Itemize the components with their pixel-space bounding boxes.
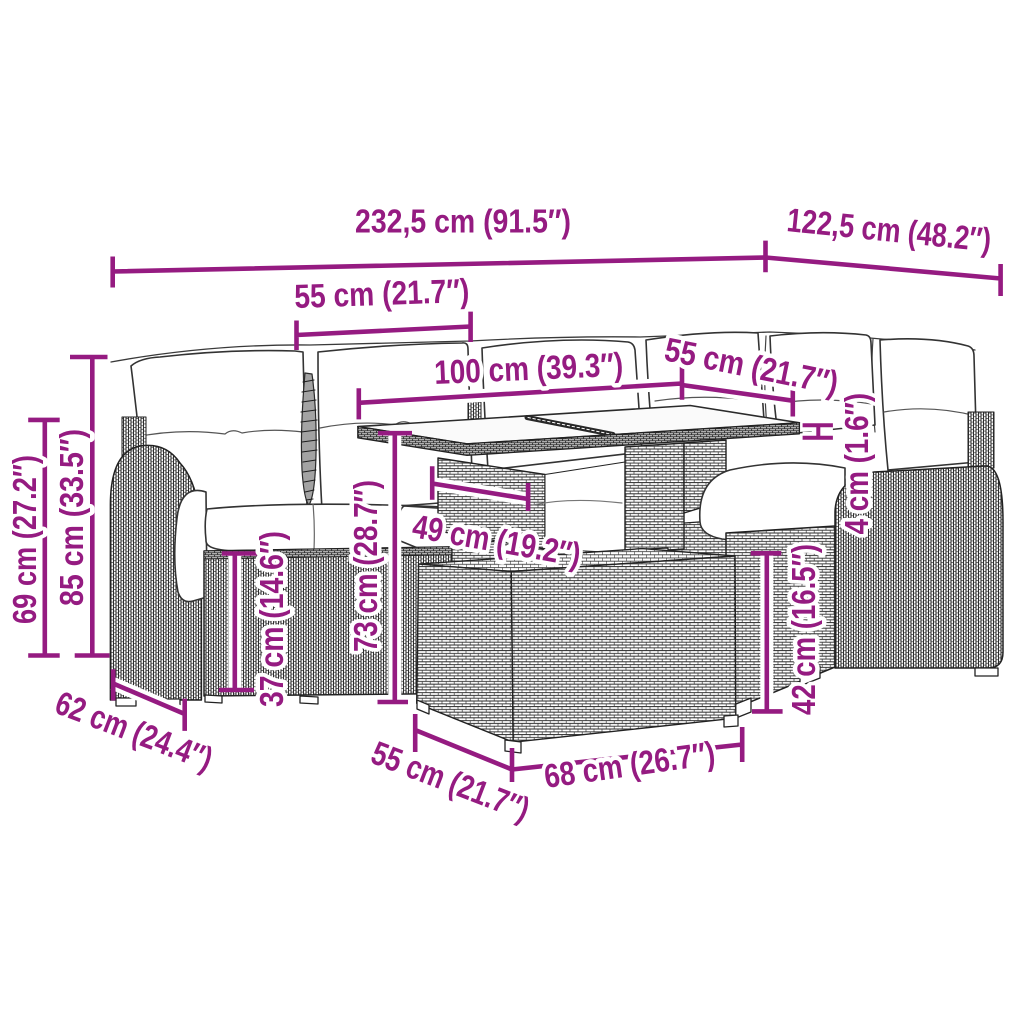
svg-text:232,5 cm (91.5″): 232,5 cm (91.5″) — [355, 204, 571, 241]
svg-text:73 cm (28.7″): 73 cm (28.7″) — [348, 480, 385, 652]
svg-text:55 cm (21.7″): 55 cm (21.7″) — [294, 273, 470, 316]
svg-text:42 cm (16.5″): 42 cm (16.5″) — [786, 544, 823, 715]
svg-text:4 cm (1.6″): 4 cm (1.6″) — [839, 393, 876, 535]
svg-text:69 cm (27.2″): 69 cm (27.2″) — [7, 455, 44, 624]
svg-text:85 cm (33.5″): 85 cm (33.5″) — [54, 429, 91, 606]
svg-text:37 cm (14.6″): 37 cm (14.6″) — [254, 531, 291, 707]
